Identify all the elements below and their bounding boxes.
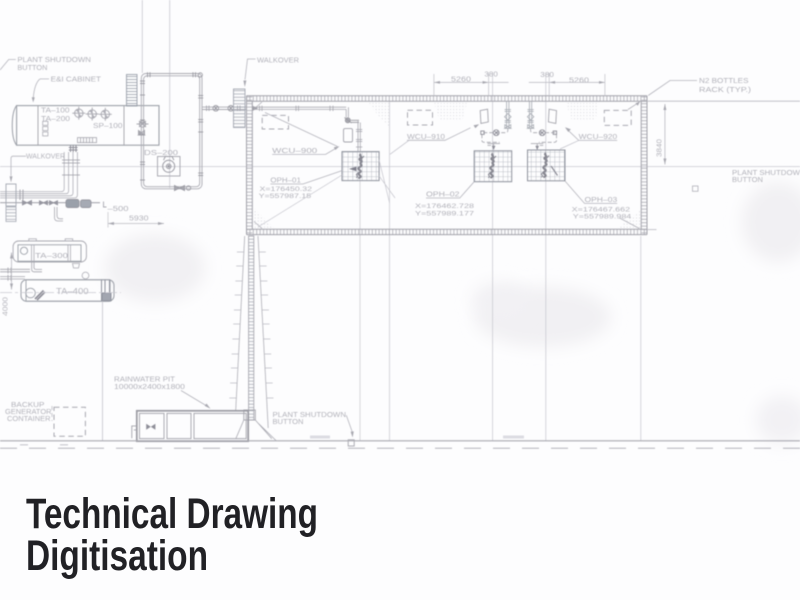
svg-text:RAINWATER PIT: RAINWATER PIT	[114, 376, 176, 383]
svg-text:N2 BOTTLES: N2 BOTTLES	[699, 76, 749, 85]
svg-text:OPH–02: OPH–02	[426, 190, 460, 199]
svg-text:Y=557989.984: Y=557989.984	[573, 213, 632, 220]
svg-text:PLANT SHUTDOW: PLANT SHUTDOW	[732, 170, 800, 177]
svg-text:380: 380	[484, 72, 498, 79]
svg-text:WALKOVER: WALKOVER	[26, 154, 65, 161]
svg-text:CONTAINER: CONTAINER	[7, 416, 51, 423]
svg-text:SP–100: SP–100	[93, 121, 123, 130]
svg-text:X=176450.32: X=176450.32	[260, 186, 313, 193]
svg-text:BUTTON: BUTTON	[273, 419, 304, 426]
svg-text:TA–100: TA–100	[41, 108, 70, 115]
svg-text:OPH–03: OPH–03	[585, 195, 618, 204]
svg-text:E&I CABINET: E&I CABINET	[51, 76, 102, 83]
svg-text:PLANT SHUTDOWN: PLANT SHUTDOWN	[17, 57, 91, 64]
svg-text:RACK (TYP.): RACK (TYP.)	[699, 85, 752, 94]
svg-text:PLANT SHUTDOWN: PLANT SHUTDOWN	[273, 412, 347, 419]
svg-text:Technical Drawing: Technical Drawing	[26, 491, 318, 538]
svg-text:TA–400: TA–400	[56, 287, 89, 296]
svg-text:WALKOVER: WALKOVER	[257, 57, 299, 64]
svg-text:BUTTON: BUTTON	[732, 177, 763, 184]
svg-text:5930: 5930	[129, 216, 149, 223]
svg-text:–500: –500	[108, 204, 129, 213]
svg-text:TA–300: TA–300	[35, 251, 68, 260]
svg-text:TA–200: TA–200	[41, 116, 70, 123]
svg-text:Digitisation: Digitisation	[26, 533, 208, 580]
svg-text:WCU–900: WCU–900	[272, 146, 317, 155]
svg-text:X=176462.728: X=176462.728	[415, 203, 474, 210]
svg-text:3840: 3840	[657, 139, 664, 157]
svg-text:WCU–920: WCU–920	[579, 132, 618, 141]
svg-text:380: 380	[540, 72, 554, 79]
svg-text:X=176467.662: X=176467.662	[572, 206, 631, 213]
svg-text:10000x2400x1800: 10000x2400x1800	[114, 384, 185, 391]
svg-text:GENERATOR: GENERATOR	[5, 409, 52, 416]
svg-text:WCU–910: WCU–910	[407, 132, 445, 141]
svg-text:BACKUP: BACKUP	[11, 402, 45, 409]
svg-text:Y=557989.177: Y=557989.177	[415, 211, 474, 218]
svg-text:5260: 5260	[569, 78, 589, 85]
svg-text:4000: 4000	[3, 297, 10, 316]
svg-text:BUTTON: BUTTON	[17, 65, 47, 72]
svg-text:OPH–01: OPH–01	[270, 176, 301, 185]
svg-text:DS–200: DS–200	[144, 148, 178, 157]
